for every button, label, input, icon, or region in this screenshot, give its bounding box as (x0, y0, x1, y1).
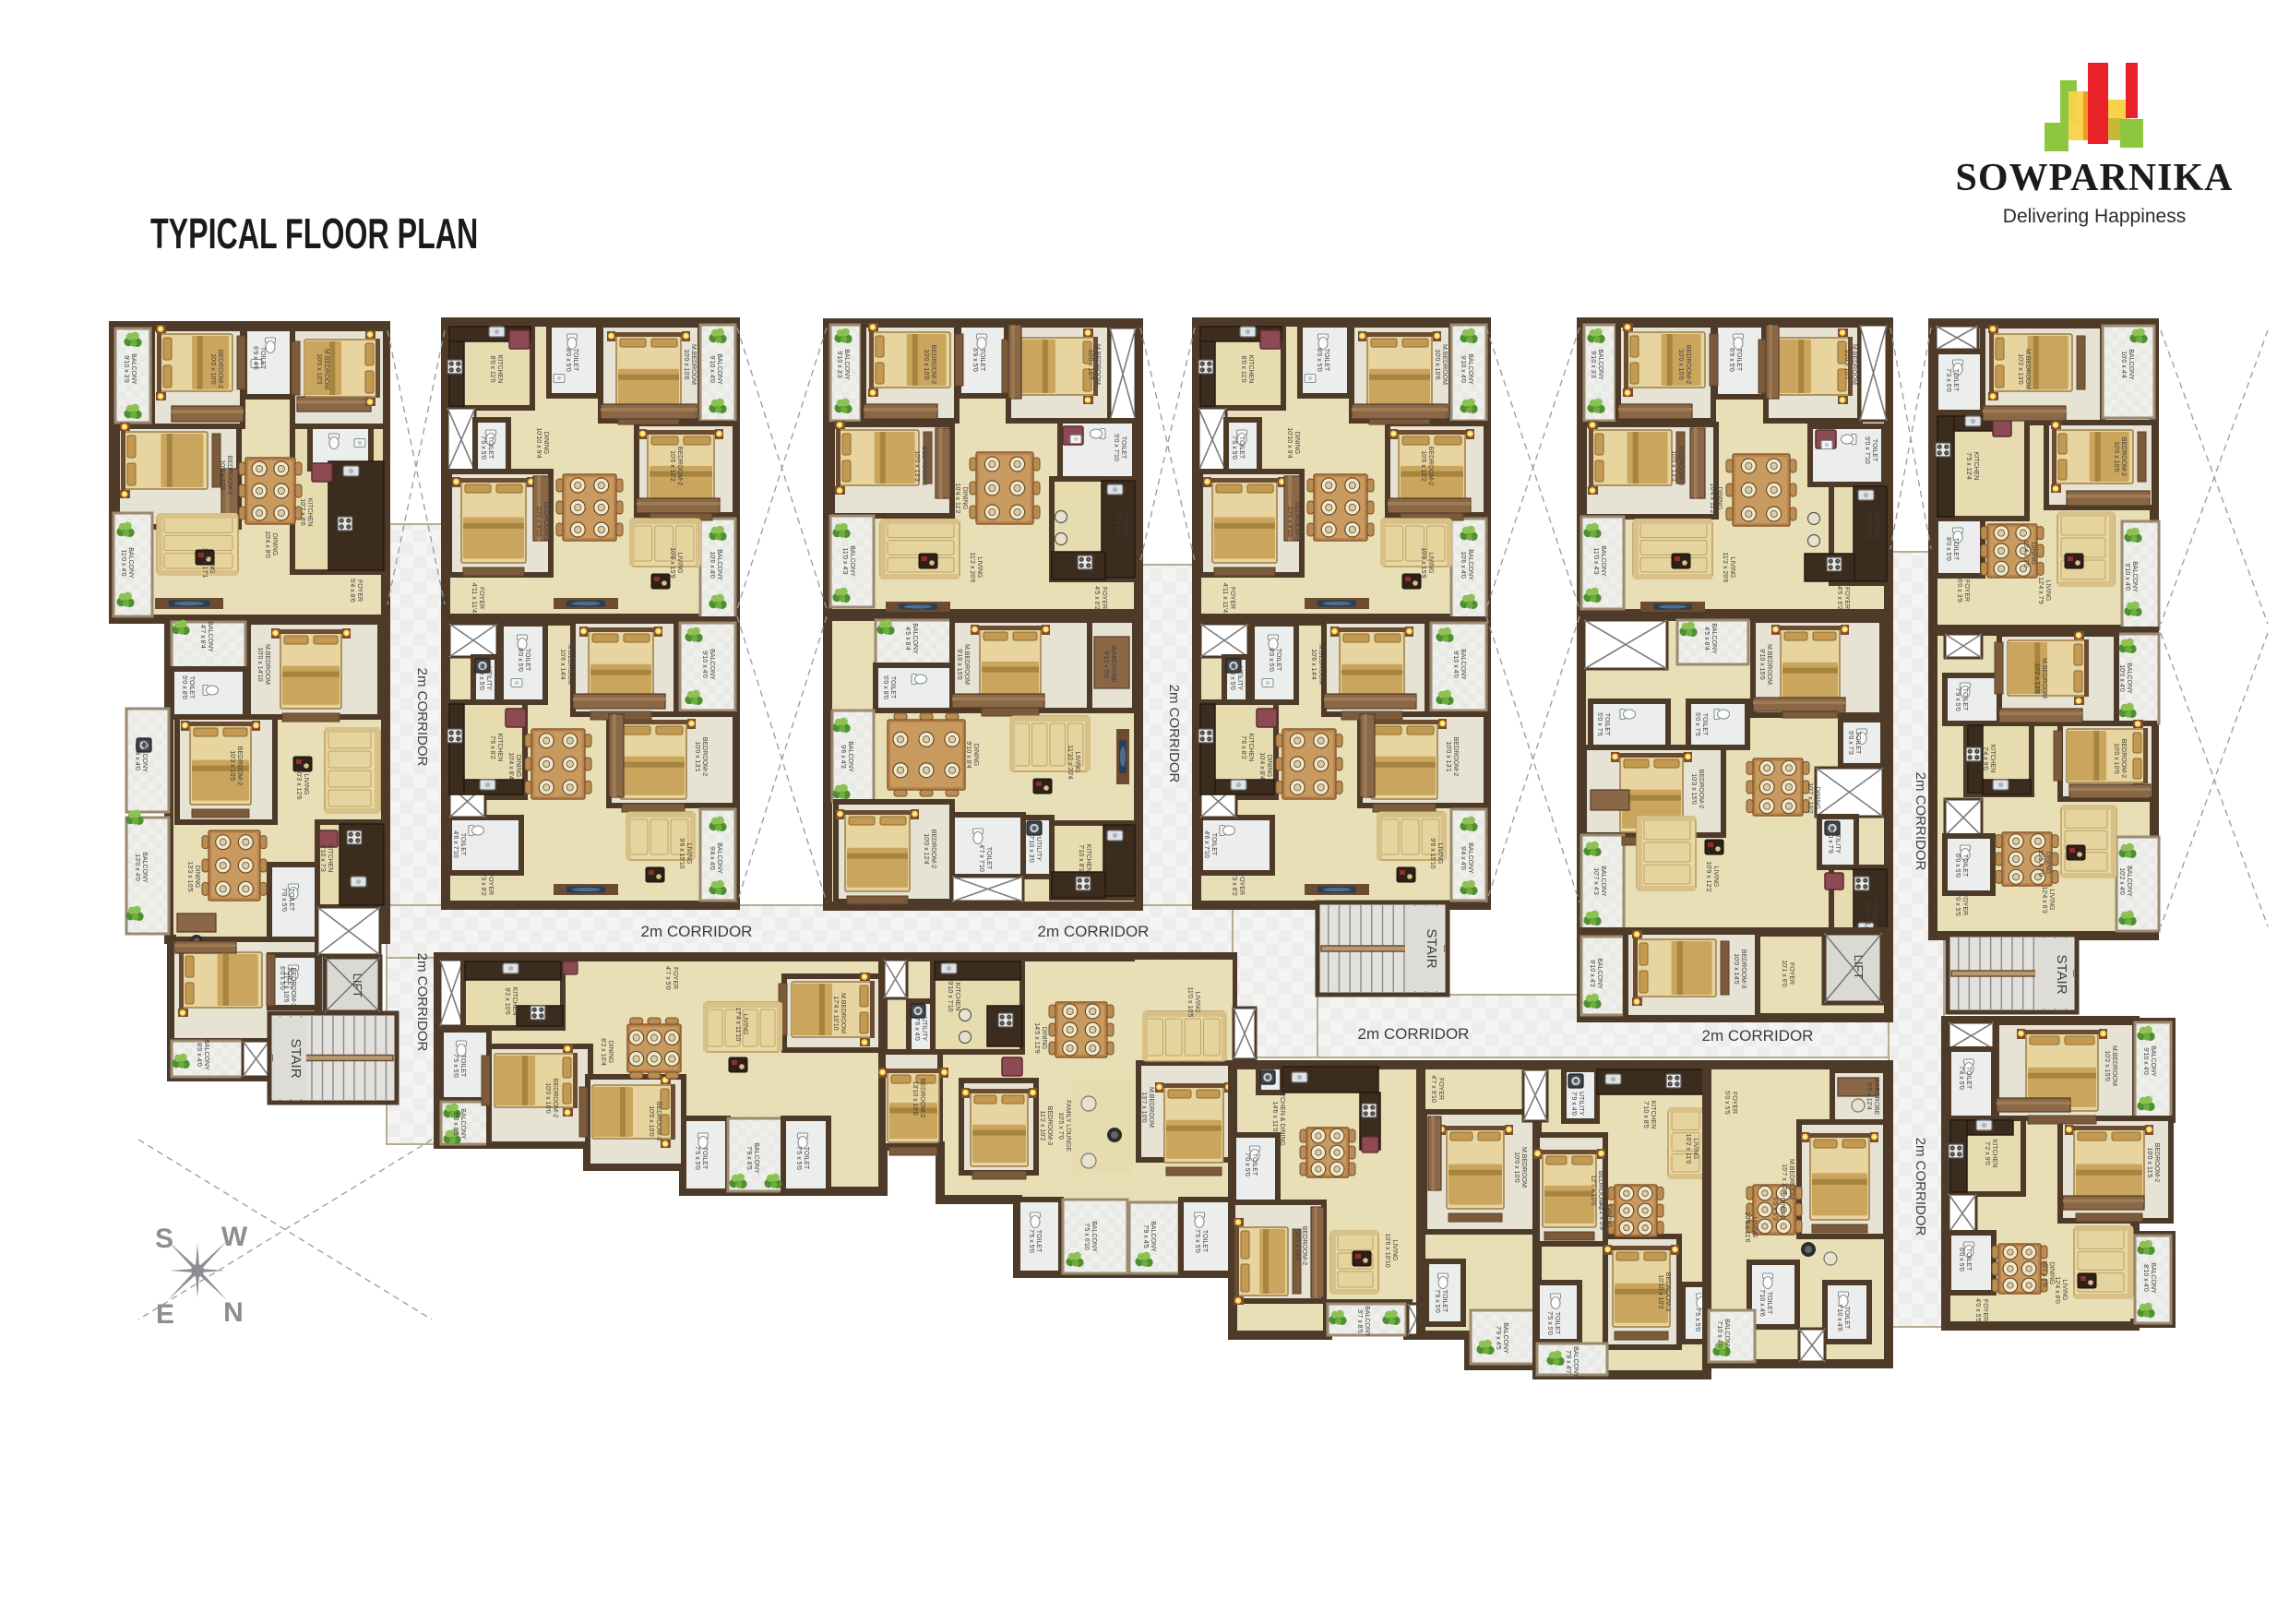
svg-text:DINING8'2 x 10'4: DINING8'2 x 10'4 (600, 1038, 614, 1066)
svg-text:FOYER4'0 x 5'5: FOYER4'0 x 5'5 (1974, 1298, 1988, 1322)
svg-text:TOILET7'4 x 5'0: TOILET7'4 x 5'0 (1958, 1066, 1972, 1090)
svg-text:BALCONY11'0 x 4'0: BALCONY11'0 x 4'0 (120, 547, 134, 579)
svg-text:UTILITY7'0 x 5'0: UTILITY7'0 x 5'0 (478, 666, 492, 690)
svg-text:FOYER6'0 x 3'9: FOYER6'0 x 3'9 (1956, 579, 1970, 603)
svg-text:BEDROOM-210'6 x 10'2: BEDROOM-210'6 x 10'2 (1420, 447, 1434, 486)
svg-text:TOILET5'0 x 7'10: TOILET5'0 x 7'10 (1113, 434, 1127, 461)
svg-text:TOILET7'9 x 5'0: TOILET7'9 x 5'0 (1954, 687, 1968, 711)
svg-text:BALCONY3'7 x 8'5: BALCONY3'7 x 8'5 (1356, 1306, 1370, 1337)
svg-text:FOYER5'0 x 5'5: FOYER5'0 x 5'5 (1723, 1091, 1737, 1115)
svg-text:BALCONY4'5 x 8'4: BALCONY4'5 x 8'4 (904, 623, 918, 654)
svg-text:BALCONY10'6 x 4'0: BALCONY10'6 x 4'0 (709, 549, 722, 580)
svg-text:2m CORRIDOR: 2m CORRIDOR (1358, 1025, 1470, 1043)
svg-text:BALCONY9'10 x 3'3: BALCONY9'10 x 3'3 (836, 349, 850, 380)
svg-text:M.BEDROOM9'10 x 15'0: M.BEDROOM9'10 x 15'0 (956, 644, 970, 685)
svg-text:BEDROOM-210'0 x 13'1: BEDROOM-210'0 x 13'1 (1445, 737, 1459, 777)
svg-text:DINING10'4 x 11'2: DINING10'4 x 11'2 (1709, 484, 1723, 514)
svg-text:DINING15'5 x 7'0: DINING15'5 x 7'0 (2037, 849, 2051, 877)
svg-text:BALCONY9'6 x 4'3: BALCONY9'6 x 4'3 (840, 741, 853, 772)
svg-text:TOILET6'9 x 5'0: TOILET6'9 x 5'0 (972, 348, 985, 372)
svg-text:BEDROOM-210'6 x 10'2: BEDROOM-210'6 x 10'2 (669, 447, 683, 486)
svg-text:BEDROOM-210'0 x 10'0: BEDROOM-210'0 x 10'0 (923, 345, 936, 385)
svg-text:BEDROOM-210'0 x 10'0: BEDROOM-210'0 x 10'0 (2113, 739, 2127, 779)
svg-text:TOILET5'0 x 7'5: TOILET5'0 x 7'5 (1596, 712, 1610, 736)
svg-text:TYPICAL FLOOR PLAN: TYPICAL FLOOR PLAN (150, 210, 478, 257)
svg-text:2m CORRIDOR: 2m CORRIDOR (1913, 772, 1928, 871)
svg-text:BEDROOM-210'0 x 10'0: BEDROOM-210'0 x 10'0 (544, 1079, 558, 1118)
svg-text:TOILET5'0 x 8'0: TOILET5'0 x 8'0 (882, 675, 896, 699)
svg-text:STAIR: STAIR (288, 1038, 304, 1078)
svg-text:BALCONY8'0 x 4'0: BALCONY8'0 x 4'0 (196, 1039, 209, 1070)
svg-text:BALCONY11'0 x 4'3: BALCONY11'0 x 4'3 (1592, 545, 1606, 577)
svg-text:STAIR: STAIR (1424, 928, 1439, 968)
svg-text:TOILET7'5 x 5'0: TOILET7'5 x 5'0 (795, 1146, 809, 1170)
svg-text:M.BEDROOM10'0 x 10'6: M.BEDROOM10'0 x 10'6 (1434, 344, 1448, 385)
svg-text:BALCONY10'4 x 4'0: BALCONY10'4 x 4'0 (134, 741, 148, 772)
svg-text:TOILET7'5 x 5'0: TOILET7'5 x 5'0 (1194, 1229, 1208, 1253)
svg-text:DINING13'3 x 10'5: DINING13'3 x 10'5 (186, 861, 200, 892)
svg-text:TOILET7'10 x 4'6: TOILET7'10 x 4'6 (1758, 1289, 1772, 1317)
svg-text:BALCONY9'10 x 4'0: BALCONY9'10 x 4'0 (1452, 649, 1466, 680)
svg-text:TOILET7'5 x 5'0: TOILET7'5 x 5'0 (1231, 436, 1245, 460)
svg-text:BALCONY7'10 x 4'0: BALCONY7'10 x 4'0 (1716, 1319, 1730, 1350)
svg-text:BALCONY9'4 x 4'0: BALCONY9'4 x 4'0 (1460, 842, 1473, 874)
svg-text:M.BEDROOM10'0 x 14'10: M.BEDROOM10'0 x 14'10 (256, 644, 270, 685)
svg-text:BEDROOM-210'0 x 12'4: BEDROOM-210'0 x 12'4 (923, 830, 936, 869)
svg-text:2m CORRIDOR: 2m CORRIDOR (641, 923, 753, 940)
svg-text:KITCHEN7'10 x 8'1: KITCHEN7'10 x 8'1 (1078, 844, 1091, 873)
svg-text:DINING10'4 x 8'4: DINING10'4 x 8'4 (1258, 752, 1272, 780)
svg-text:KITCHEN11'5 x 6'2: KITCHEN11'5 x 6'2 (1866, 512, 1879, 541)
svg-text:W: W (221, 1222, 248, 1252)
svg-text:M.BEDROOM10'0 x 10'0: M.BEDROOM10'0 x 10'0 (1513, 1147, 1527, 1188)
svg-text:M.BEDROOM13'7 x 10'0: M.BEDROOM13'7 x 10'0 (1140, 1087, 1154, 1128)
svg-text:SOWPARNIKA: SOWPARNIKA (1956, 157, 2234, 199)
svg-text:TOILET8'0 x 5'0: TOILET8'0 x 5'0 (565, 348, 578, 372)
svg-text:LIFT: LIFT (1852, 955, 1866, 980)
svg-text:BEDROOM-210'0 x 10'0: BEDROOM-210'0 x 10'0 (2113, 437, 2127, 477)
svg-text:BALCONY9'10 x 4'0: BALCONY9'10 x 4'0 (2142, 1045, 2156, 1077)
svg-text:BALCONY9'10 x 3'3: BALCONY9'10 x 3'3 (1590, 349, 1603, 380)
svg-text:TOILET6'9 x 4'6: TOILET6'9 x 4'6 (252, 346, 266, 370)
svg-text:BEDROOM-210'0 x 11'5: BEDROOM-210'0 x 11'5 (2146, 1143, 2160, 1183)
svg-text:TOILET7'3 x 5'0: TOILET7'3 x 5'0 (1945, 368, 1959, 392)
svg-text:TOILET7'10 x 4'6: TOILET7'10 x 4'6 (1836, 1304, 1850, 1331)
svg-text:TOILET7'5 x 5'0: TOILET7'5 x 5'0 (480, 436, 494, 460)
svg-text:KITCHEN9'10 x 7'3: KITCHEN9'10 x 7'3 (319, 844, 333, 873)
svg-text:UTILITY7'9 x 4'0: UTILITY7'9 x 4'0 (1570, 1092, 1584, 1116)
svg-text:BEDROOM-310'0 x 13'3: BEDROOM-310'0 x 13'3 (913, 447, 927, 486)
svg-text:2m CORRIDOR: 2m CORRIDOR (414, 953, 430, 1052)
svg-text:DINING15'7 x 7'0: DINING15'7 x 7'0 (2041, 1260, 2055, 1287)
svg-text:DINING10'10 x 9'4: DINING10'10 x 9'4 (535, 427, 549, 459)
svg-text:BALCONY4'7 x 8'4: BALCONY4'7 x 8'4 (199, 621, 213, 652)
svg-text:BALCONY7'9 x 8'5: BALCONY7'9 x 8'5 (745, 1142, 759, 1174)
svg-text:2m CORRIDOR: 2m CORRIDOR (1038, 923, 1150, 940)
svg-text:2m CORRIDOR: 2m CORRIDOR (1913, 1138, 1928, 1236)
svg-text:KITCHEN10'7 x 8'6: KITCHEN10'7 x 8'6 (299, 498, 313, 527)
svg-text:TOILET5'0 x 7'10: TOILET5'0 x 7'10 (1864, 436, 1878, 464)
svg-text:BALCONY9'10 x 4'0: BALCONY9'10 x 4'0 (1460, 353, 1473, 385)
svg-text:BALCONY13'0 x 4'0: BALCONY13'0 x 4'0 (134, 852, 148, 883)
svg-text:DINING10'4 x 11'2: DINING10'4 x 11'2 (954, 484, 968, 514)
svg-text:BALCONY9'4 x 4'0: BALCONY9'4 x 4'0 (709, 842, 722, 874)
svg-text:UTILITY5'0 x 7'9: UTILITY5'0 x 7'9 (1827, 830, 1841, 854)
svg-text:LIVING12'4 x 7'9: LIVING12'4 x 7'9 (2037, 577, 2051, 604)
svg-text:KITCHEN7'5 x 12'4: KITCHEN7'5 x 12'4 (1965, 452, 1979, 481)
svg-text:KITCHEN7'10 x 8'5: KITCHEN7'10 x 8'5 (1642, 1101, 1656, 1129)
svg-text:KITCHEN8'0 x 11'0: KITCHEN8'0 x 11'0 (1240, 355, 1254, 384)
svg-text:BALCONY10'0 x 4'4: BALCONY10'0 x 4'4 (2120, 349, 2134, 380)
svg-text:DINING10'4 x 8'0: DINING10'4 x 8'0 (264, 531, 278, 558)
svg-text:KITCHEN7'6 x 8'2: KITCHEN7'6 x 8'2 (1240, 734, 1254, 762)
svg-text:TOILET8'0 x 5'0: TOILET8'0 x 5'0 (1316, 348, 1329, 372)
svg-text:LIVING12'4 x 8'0: LIVING12'4 x 8'0 (2054, 1276, 2068, 1304)
svg-text:TOILET4'7 x 7'10: TOILET4'7 x 7'10 (978, 844, 992, 872)
svg-text:BALCONY4'5 x 8'4: BALCONY4'5 x 8'4 (1703, 623, 1717, 654)
svg-text:BALCONY9'10 x 4'0: BALCONY9'10 x 4'0 (2124, 561, 2138, 592)
svg-text:2m CORRIDOR: 2m CORRIDOR (1702, 1027, 1814, 1045)
svg-text:BEDROOM-310'0 x 13'3: BEDROOM-310'0 x 13'3 (1670, 447, 1684, 486)
svg-text:BEDROOM-210'3 x 15'0: BEDROOM-210'3 x 15'0 (1690, 770, 1704, 809)
svg-text:DINING10'10 x 9'4: DINING10'10 x 9'4 (1286, 427, 1300, 459)
svg-text:BALCONY9'10 x 4'0: BALCONY9'10 x 4'0 (709, 353, 722, 385)
svg-text:LIVING12'4 x 6'3: LIVING12'4 x 6'3 (2041, 886, 2055, 913)
svg-text:BEDROOM-210'2 x 10'6: BEDROOM-210'2 x 10'6 (1294, 1226, 1307, 1266)
svg-text:M.BEDROOM17'4 x 10'10: M.BEDROOM17'4 x 10'10 (832, 993, 846, 1033)
svg-text:BEDROOM-311'2 x 10'2: BEDROOM-311'2 x 10'2 (1039, 1106, 1053, 1146)
svg-text:STAIR: STAIR (2054, 954, 2069, 994)
svg-text:BEDROOM-210'0 x 10'8: BEDROOM-210'0 x 10'8 (219, 456, 232, 496)
svg-text:WARDROBE6'0 x 12'4: WARDROBE6'0 x 12'4 (1866, 1078, 1879, 1116)
svg-text:BEDROOM-213'10 x 10'0: BEDROOM-213'10 x 10'0 (912, 1079, 925, 1118)
svg-text:TOILET4'6 x 7'10: TOILET4'6 x 7'10 (452, 830, 466, 858)
svg-text:BALCONY10'6 x 4'0: BALCONY10'6 x 4'0 (1460, 549, 1473, 580)
svg-text:TOILET5'0 x 8'0: TOILET5'0 x 8'0 (181, 675, 195, 699)
svg-text:TOILET8'0 x 5'0: TOILET8'0 x 5'0 (1268, 648, 1282, 672)
svg-text:BEDROOM-310'10 x 10'2: BEDROOM-310'10 x 10'2 (1657, 1272, 1671, 1312)
svg-text:M.BEDROOM10'0 x 10'7: M.BEDROOM10'0 x 10'7 (1087, 344, 1101, 385)
svg-text:KITCHEN11'5 x 6'2: KITCHEN11'5 x 6'2 (1115, 507, 1128, 536)
svg-text:BALCONY5'0 x 8'5: BALCONY5'0 x 8'5 (452, 1108, 466, 1140)
svg-text:FOYER4'5 x 6'2: FOYER4'5 x 6'2 (1836, 586, 1850, 610)
svg-text:BALCONY7'5 x 6'10: BALCONY7'5 x 6'10 (1083, 1221, 1097, 1252)
svg-text:M.BEDROOM10'6 x 14'4: M.BEDROOM10'6 x 14'4 (1310, 644, 1324, 685)
svg-text:BALCONY10'7 x 4'3: BALCONY10'7 x 4'3 (1592, 866, 1606, 897)
svg-text:LIFT: LIFT (351, 973, 364, 998)
svg-text:BALCONY7'9 x 4'7: BALCONY7'9 x 4'7 (1565, 1346, 1579, 1378)
svg-text:TOILET5'0 x 7'5: TOILET5'0 x 7'5 (1694, 712, 1708, 736)
svg-text:M.BEDROOM15'7 x 12'4: M.BEDROOM15'7 x 12'4 (1781, 1159, 1794, 1200)
svg-text:TOILET6'9 x 5'0: TOILET6'9 x 5'0 (1728, 348, 1742, 372)
svg-text:TOILET8'0 x 5'0: TOILET8'0 x 5'0 (1945, 537, 1959, 561)
svg-text:FOYER10'1 x 6'0: FOYER10'1 x 6'0 (1781, 960, 1794, 987)
svg-text:BALCONY9'10 x 4'0: BALCONY9'10 x 4'0 (701, 649, 715, 680)
svg-text:DINING10'7 x 10'2: DINING10'7 x 10'2 (1806, 782, 1820, 814)
svg-text:WARDROBE9'10 x 5'0: WARDROBE9'10 x 5'0 (1103, 646, 1116, 684)
svg-text:FOYER4'3 x 8'2: FOYER4'3 x 8'2 (480, 872, 494, 896)
svg-text:TOILET7'5 x 5'0: TOILET7'5 x 5'0 (452, 1054, 466, 1078)
svg-text:BEDROOM-310'6 x 9'10: BEDROOM-310'6 x 9'10 (535, 502, 549, 542)
svg-text:2m CORRIDOR: 2m CORRIDOR (1166, 685, 1182, 783)
svg-text:KITCHEN9'8 x 7'1: KITCHEN9'8 x 7'1 (1864, 900, 1878, 928)
svg-text:BALCONY10'0 x 4'0: BALCONY10'0 x 4'0 (2118, 663, 2132, 694)
svg-text:TOILET7'5 x 5'0: TOILET7'5 x 5'0 (1028, 1229, 1042, 1253)
svg-text:DINING13'4 x 7'0: DINING13'4 x 7'0 (2022, 540, 2036, 567)
svg-text:FOYER4'3 x 8'2: FOYER4'3 x 8'2 (1231, 872, 1245, 896)
svg-text:TOILET7'0 x 5'0: TOILET7'0 x 5'0 (280, 888, 294, 912)
svg-text:BEDROOM-310'6 x 9'10: BEDROOM-310'6 x 9'10 (1286, 502, 1300, 542)
svg-text:BALCONY9'10 x 3'9: BALCONY9'10 x 3'9 (123, 353, 137, 385)
svg-text:TOILET6'0 x 5'0: TOILET6'0 x 5'0 (1958, 1248, 1972, 1272)
svg-text:FOYER4'7 x 5'0: FOYER4'7 x 5'0 (664, 966, 678, 990)
svg-text:M.BEDROOM9'10 x 15'0: M.BEDROOM9'10 x 15'0 (1758, 644, 1772, 685)
svg-text:M.BEDROOM10'2 x 13'0: M.BEDROOM10'2 x 13'0 (2017, 349, 2031, 389)
svg-text:M.BEDROOM10'0 x 10'7: M.BEDROOM10'0 x 10'7 (1843, 344, 1857, 385)
svg-text:KITCHEN9'10 x 7'10: KITCHEN9'10 x 7'10 (947, 981, 960, 1012)
svg-text:BEDROOM-210'0 x 13'1: BEDROOM-210'0 x 13'1 (694, 737, 708, 777)
svg-text:UTILITY7'0 x 5'0: UTILITY7'0 x 5'0 (1229, 666, 1243, 690)
svg-text:TOILET5'0 x 7'3: TOILET5'0 x 7'3 (1847, 731, 1861, 755)
svg-text:S: S (155, 1224, 173, 1254)
svg-text:FOYER4'11 x 11'4: FOYER4'11 x 11'4 (471, 583, 484, 613)
svg-text:FOYER5'4 x 8'6: FOYER5'4 x 8'6 (349, 579, 363, 603)
svg-text:M.BEDROOM10'2 x 13'0: M.BEDROOM10'2 x 13'0 (2033, 658, 2047, 699)
svg-text:DINING5'5 x 5'3: DINING5'5 x 5'3 (1771, 1197, 1785, 1221)
svg-text:M.BEDROOM10'0 x 10'3: M.BEDROOM10'0 x 10'3 (316, 349, 329, 389)
svg-text:TOILET7'9 x 5'0: TOILET7'9 x 5'0 (1434, 1289, 1448, 1313)
svg-text:KITCHEN7'4 x 9'0: KITCHEN7'4 x 9'0 (1982, 745, 1996, 773)
svg-text:DINING9'10 x 8'4: DINING9'10 x 8'4 (965, 741, 979, 769)
svg-text:KITCHEN8'0 x 11'0: KITCHEN8'0 x 11'0 (489, 355, 503, 384)
svg-text:FOYER4'5 x 6'2: FOYER4'5 x 6'2 (1093, 586, 1107, 610)
svg-text:BALCONY7'9 x 4'5: BALCONY7'9 x 4'5 (1142, 1221, 1156, 1252)
svg-text:BALCONY7'9 x 4'5: BALCONY7'9 x 4'5 (1495, 1322, 1508, 1354)
svg-text:BEDROOM-310'0 x 14'5: BEDROOM-310'0 x 14'5 (1733, 949, 1747, 989)
svg-text:BEDROOM-210'3 x 10'5: BEDROOM-210'3 x 10'5 (229, 746, 243, 786)
svg-text:2m CORRIDOR: 2m CORRIDOR (414, 668, 430, 767)
svg-text:TOILET7'5 x 5'0: TOILET7'5 x 5'0 (694, 1146, 708, 1170)
svg-text:BEDROOM-310'0 x 10'0: BEDROOM-310'0 x 10'0 (648, 1102, 662, 1141)
svg-text:KITCHEN7'2 x 9'0: KITCHEN7'2 x 9'0 (1984, 1140, 1997, 1168)
svg-text:BALCONY9'10 x 4'3: BALCONY9'10 x 4'3 (1589, 958, 1603, 989)
svg-text:BALCONY10'2 x 4'0: BALCONY10'2 x 4'0 (2118, 866, 2132, 897)
svg-text:TOILET7'0 x 5'0: TOILET7'0 x 5'0 (1244, 1152, 1258, 1176)
svg-text:KITCHEN7'6 x 8'2: KITCHEN7'6 x 8'2 (489, 734, 503, 762)
svg-text:TOILET6'0 x 5'0: TOILET6'0 x 5'0 (1954, 854, 1968, 878)
svg-text:M.BEDROOM10'2 x 15'0: M.BEDROOM10'2 x 15'0 (2104, 1045, 2117, 1086)
svg-text:KITCHEN9'2 x 10'6: KITCHEN9'2 x 10'6 (504, 987, 518, 1016)
svg-text:FOYER4'7 x 9'10: FOYER4'7 x 9'10 (1430, 1075, 1444, 1103)
svg-text:UTILITY7'6 x 4'0: UTILITY7'6 x 4'0 (913, 1017, 927, 1041)
svg-text:Delivering Happiness: Delivering Happiness (2003, 206, 2186, 227)
svg-text:UTILITY7'10 x 3'0: UTILITY7'10 x 3'0 (1028, 835, 1042, 863)
svg-text:BALCONY11'0 x 4'3: BALCONY11'0 x 4'3 (841, 545, 855, 577)
svg-text:DINING10'2 x 5'9: DINING10'2 x 5'9 (1598, 1202, 1612, 1230)
svg-text:TOILET8'0 x 5'0: TOILET8'0 x 5'0 (517, 648, 531, 672)
svg-text:FOYER4'11 x 11'4: FOYER4'11 x 11'4 (1222, 583, 1235, 613)
svg-text:TOILET7'5 x 5'0: TOILET7'5 x 5'0 (1546, 1311, 1560, 1335)
svg-text:TOILET6'0 x 5'0: TOILET6'0 x 5'0 (279, 966, 292, 990)
svg-text:M.BEDROOM10'0 x 10'6: M.BEDROOM10'0 x 10'6 (683, 344, 697, 385)
svg-text:M.BEDROOM10'6 x 14'4: M.BEDROOM10'6 x 14'4 (559, 644, 573, 685)
svg-text:BEDROOM-210'0 x 10'0: BEDROOM-210'0 x 10'0 (209, 350, 223, 389)
svg-text:FOYER4'0 x 5'5: FOYER4'0 x 5'5 (1954, 892, 1968, 916)
svg-text:DINING14'5 x 12'9: DINING14'5 x 12'9 (1033, 1022, 1047, 1054)
svg-text:TOILET4'6 x 7'10: TOILET4'6 x 7'10 (1203, 830, 1217, 858)
svg-text:DINING10'4 x 8'4: DINING10'4 x 8'4 (507, 752, 521, 780)
svg-text:BALCONY8'10 x 4'0: BALCONY8'10 x 4'0 (2142, 1262, 2156, 1294)
svg-text:BEDROOM-210'0 x 10'0: BEDROOM-210'0 x 10'0 (1677, 345, 1691, 385)
svg-text:N: N (223, 1297, 244, 1328)
